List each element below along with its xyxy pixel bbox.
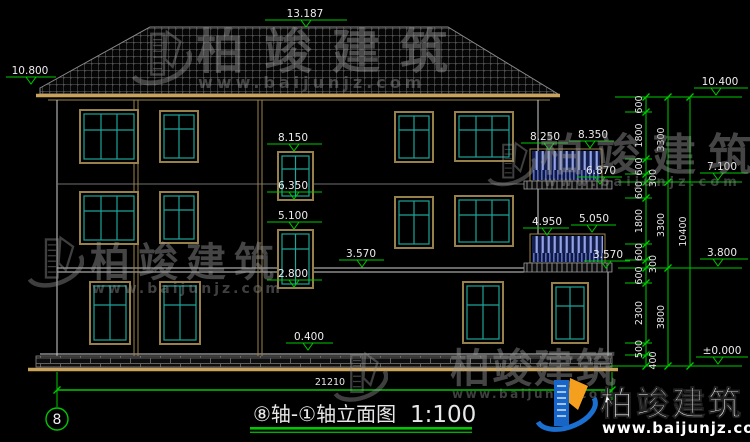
- window-2f-d: [455, 196, 513, 246]
- marker-5100: 5.100: [267, 210, 322, 229]
- window-3f-d: [455, 112, 513, 161]
- marker-8150: 8.150: [267, 132, 322, 151]
- svg-text:6.350: 6.350: [278, 180, 308, 192]
- window-1f-porch: [552, 283, 588, 343]
- marker-5050: 5.050: [571, 213, 616, 232]
- svg-text:3800: 3800: [656, 305, 667, 329]
- marker-left-eave: 10.800: [6, 65, 56, 84]
- width-dim-label: 21210: [315, 377, 345, 388]
- cad-elevation-screenshot: 600 1800 600 300 600 1800 600 300 600 23…: [0, 0, 750, 442]
- marker-3800: 3.800: [700, 247, 748, 266]
- title-underline-thin: [250, 432, 472, 433]
- window-3f-b: [160, 111, 198, 162]
- svg-text:3300: 3300: [656, 213, 667, 237]
- svg-text:2300: 2300: [634, 301, 645, 325]
- svg-text:300: 300: [648, 255, 659, 273]
- svg-text:10.800: 10.800: [12, 65, 49, 77]
- svg-text:±0.000: ±0.000: [703, 345, 742, 357]
- window-3f-a: [80, 110, 138, 163]
- watermark-brand-text: 柏竣建筑: [196, 24, 468, 80]
- svg-text:4.950: 4.950: [532, 216, 562, 228]
- svg-text:600: 600: [634, 243, 645, 261]
- svg-text:0.400: 0.400: [294, 331, 324, 343]
- elevation-drawing: 600 1800 600 300 600 1800 600 300 600 23…: [0, 0, 750, 442]
- watermark-brand-text: 柏竣建筑: [450, 346, 618, 392]
- watermark-url-text: www.baijunjz.com: [452, 387, 615, 401]
- window-2f-a: [80, 192, 138, 244]
- axis-bubble-8-label: 8: [53, 412, 62, 428]
- svg-text:2.800: 2.800: [278, 268, 308, 280]
- marker-zero: ±0.000: [696, 345, 748, 364]
- svg-text:5.100: 5.100: [278, 210, 308, 222]
- marker-0400: 0.400: [286, 331, 333, 350]
- svg-text:3.570: 3.570: [346, 248, 376, 260]
- svg-text:500: 500: [634, 340, 645, 358]
- watermark-brand-text: 柏竣建筑: [540, 130, 750, 181]
- marker-4950: 4.950: [523, 216, 569, 235]
- watermark-url-text: www.baijunjz.com: [92, 281, 283, 297]
- drawing-title-block: ⑧轴-①轴立面图 1:100: [250, 402, 476, 433]
- balcony-2f-slab: [524, 263, 612, 272]
- drawing-scale: 1:100: [410, 402, 476, 428]
- svg-text:600: 600: [634, 266, 645, 284]
- drawing-title: ⑧轴-①轴立面图: [253, 402, 396, 426]
- window-stair-upper: [278, 152, 313, 200]
- marker-3570-left: 3.570: [339, 248, 384, 267]
- watermark-url-text: www.baijunjz.com: [544, 175, 741, 190]
- svg-text:600: 600: [634, 95, 645, 113]
- window-3f-c: [395, 112, 433, 162]
- footer-brand-text: 柏竣建筑: [600, 384, 744, 423]
- window-1f-c: [463, 282, 503, 343]
- footer-url-text: www.baijunjz.com: [602, 419, 750, 437]
- footer-brand: 柏竣建筑 www.baijunjz.com: [538, 378, 750, 437]
- watermark-logo-icon: [30, 238, 82, 286]
- svg-text:400: 400: [648, 351, 659, 369]
- svg-text:10.400: 10.400: [702, 76, 739, 88]
- watermark-mid-left: 柏竣建筑 www.baijunjz.com: [30, 238, 283, 297]
- svg-text:3.570: 3.570: [593, 249, 623, 261]
- window-2f-c: [395, 197, 433, 248]
- svg-text:1800: 1800: [634, 209, 645, 233]
- window-2f-b: [160, 192, 198, 243]
- chain-total-label: 10400: [678, 216, 689, 246]
- svg-text:8.150: 8.150: [278, 132, 308, 144]
- svg-text:3.800: 3.800: [707, 247, 737, 259]
- svg-text:13.187: 13.187: [287, 8, 324, 20]
- svg-text:5.050: 5.050: [579, 213, 609, 225]
- marker-right-eave: 10.400: [694, 76, 748, 95]
- title-underline-thick: [250, 427, 472, 430]
- watermark-brand-text: 柏竣建筑: [90, 240, 282, 286]
- watermark-url-text: www.baijunjz.com: [198, 73, 425, 92]
